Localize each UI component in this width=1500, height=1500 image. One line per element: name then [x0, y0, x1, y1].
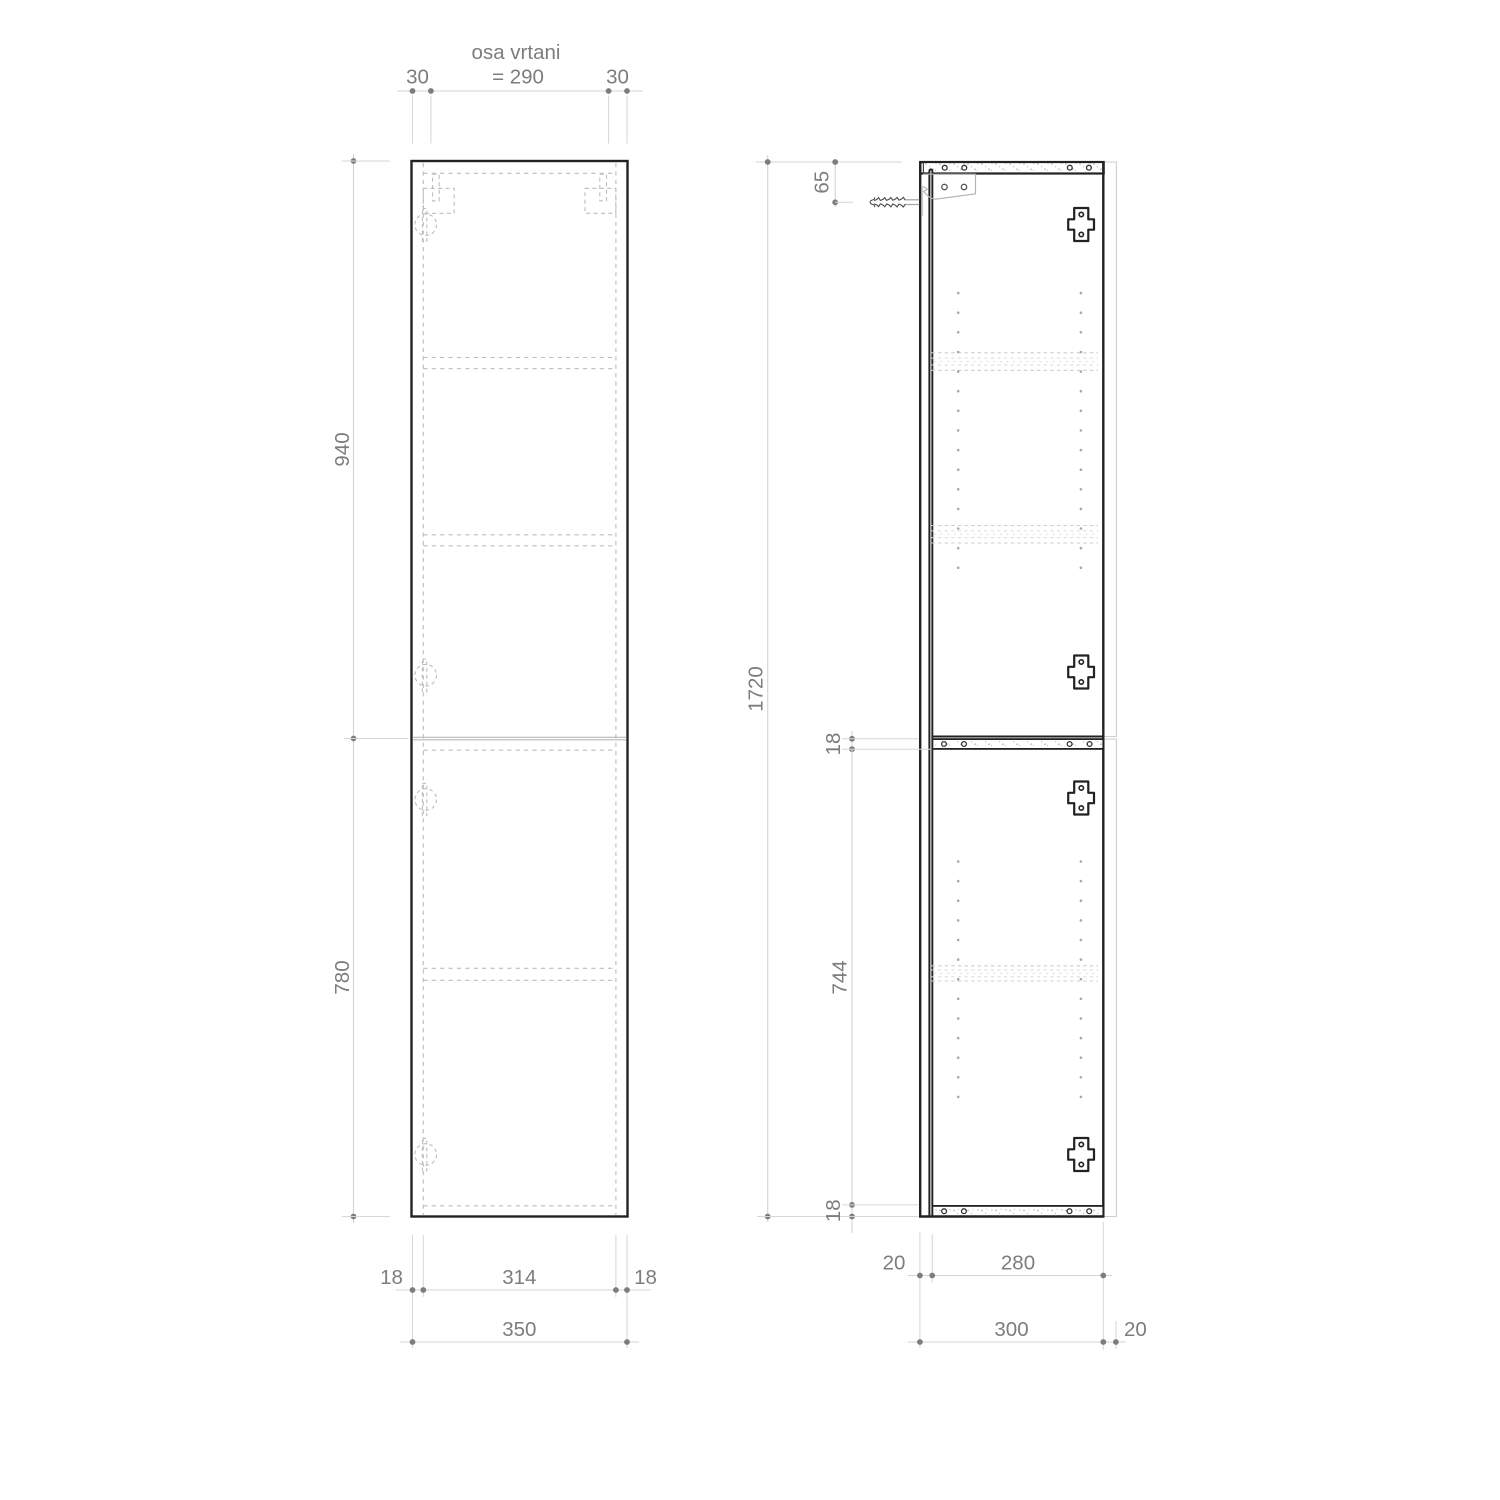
svg-text:314: 314: [502, 1266, 536, 1289]
svg-text:350: 350: [502, 1318, 536, 1341]
svg-text:20: 20: [1124, 1318, 1147, 1341]
svg-text:65: 65: [810, 171, 833, 194]
svg-text:18: 18: [380, 1266, 403, 1289]
svg-text:780: 780: [331, 960, 354, 994]
svg-text:= 290: = 290: [492, 66, 544, 89]
svg-text:1720: 1720: [745, 666, 768, 712]
svg-text:30: 30: [606, 66, 629, 89]
svg-text:18: 18: [634, 1266, 657, 1289]
svg-text:30: 30: [406, 66, 429, 89]
svg-text:280: 280: [1001, 1252, 1035, 1275]
svg-text:18: 18: [822, 1199, 845, 1222]
svg-text:940: 940: [331, 432, 354, 466]
svg-text:20: 20: [883, 1252, 906, 1275]
svg-text:osa vrtani: osa vrtani: [472, 41, 561, 64]
svg-text:744: 744: [828, 960, 851, 994]
svg-text:300: 300: [994, 1318, 1028, 1341]
svg-text:18: 18: [822, 733, 845, 756]
